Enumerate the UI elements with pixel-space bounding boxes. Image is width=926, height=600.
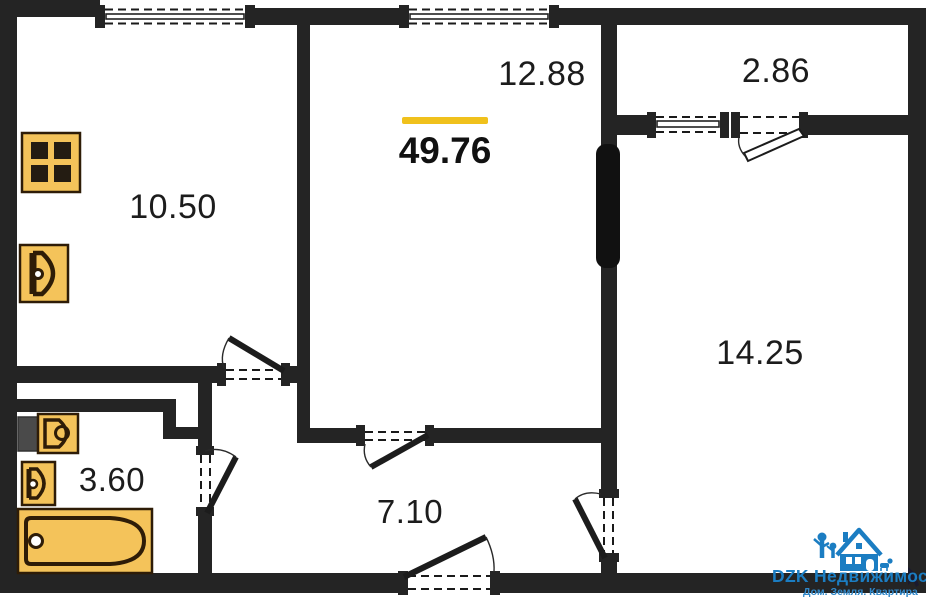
vent-shaft xyxy=(596,144,620,268)
stove-icon xyxy=(22,133,80,192)
bedroom-door xyxy=(575,489,619,562)
kitchen-window-icon xyxy=(95,5,255,28)
kitchen-sink-icon xyxy=(20,245,68,302)
watermark-tagline: Дом. Земля. Квартира xyxy=(803,586,918,598)
bathtub-icon xyxy=(18,509,152,573)
room-label-hallway: 7.10 xyxy=(340,495,480,528)
room-label-living: 12.88 xyxy=(472,57,612,91)
living-window-icon xyxy=(399,5,559,28)
living-door xyxy=(356,425,434,467)
total-area-underline xyxy=(402,117,488,124)
room-label-bedroom: 14.25 xyxy=(690,336,830,370)
room-label-balcony: 2.86 xyxy=(706,54,846,88)
room-label-kitchen: 10.50 xyxy=(103,190,243,224)
total-area-label: 49.76 xyxy=(375,132,515,169)
balcony-door xyxy=(731,112,808,161)
room-label-bathroom: 3.60 xyxy=(42,463,182,496)
bathroom-door xyxy=(196,446,236,516)
watermark-brand: DZK Недвижимость xyxy=(772,566,926,587)
kitchen-door xyxy=(217,338,290,386)
entrance-door xyxy=(398,537,500,595)
balcony-window-icon xyxy=(647,112,729,138)
house-logo-icon xyxy=(814,530,893,571)
floor-plan: 10.50 12.88 2.86 14.25 3.60 7.10 49.76 D… xyxy=(0,0,926,600)
toilet-icon xyxy=(18,414,78,453)
